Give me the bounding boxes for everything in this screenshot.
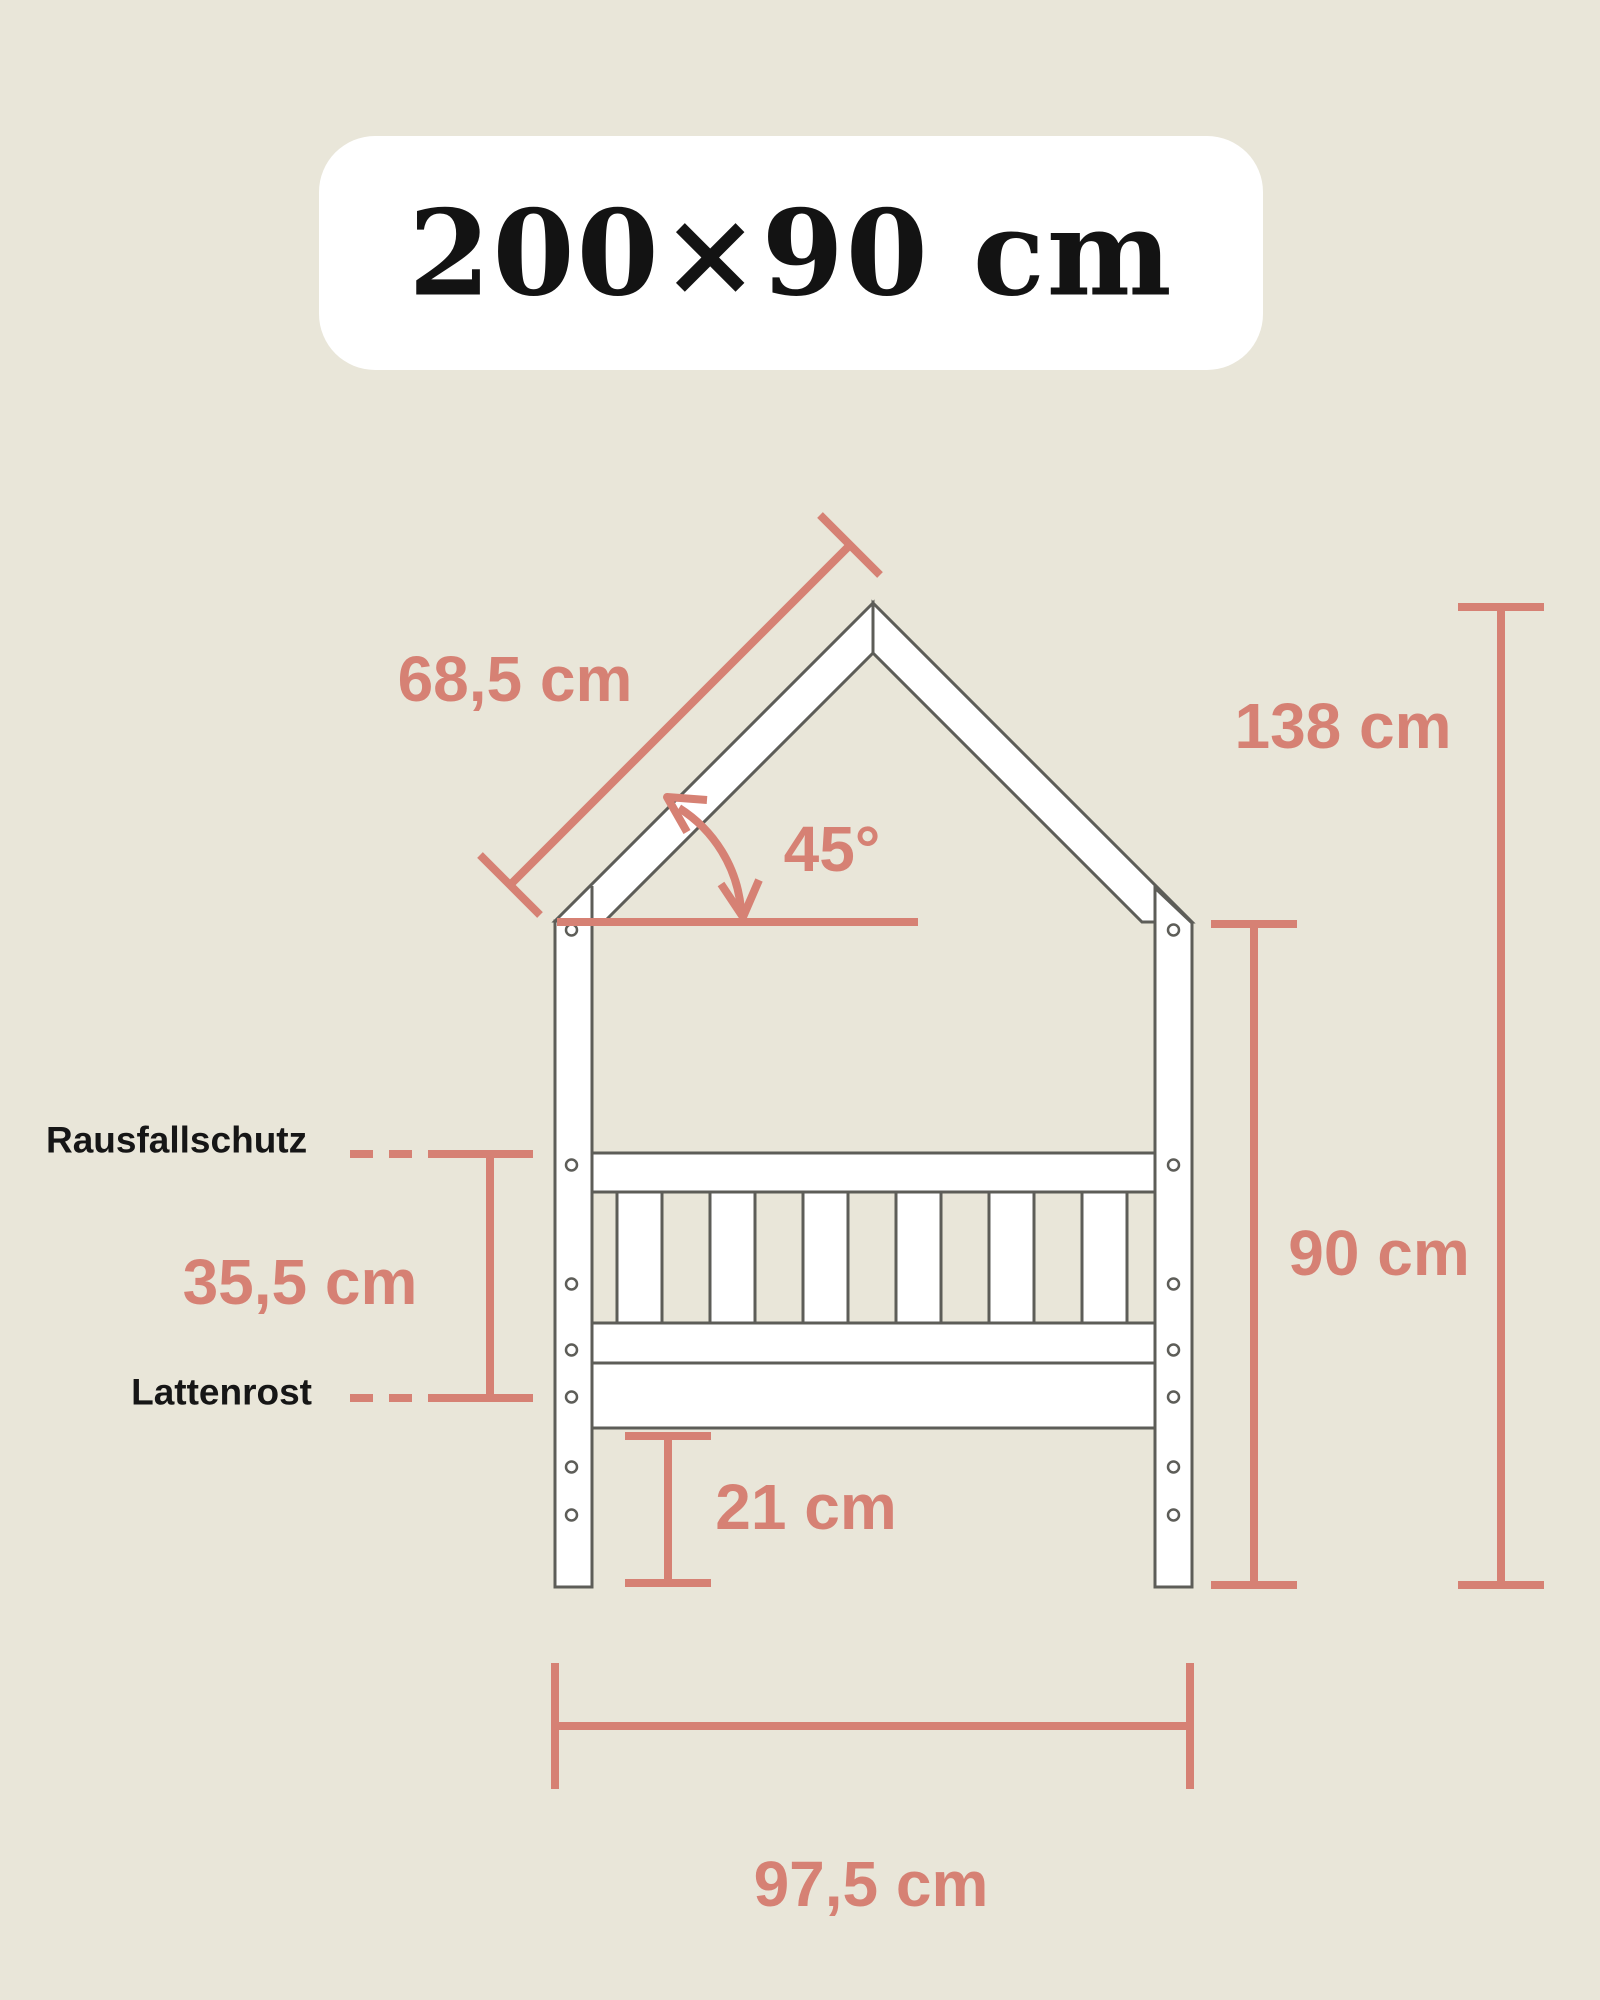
screw-hole: [566, 1462, 577, 1473]
guard-rail-top: [592, 1153, 1155, 1192]
screw-hole: [1168, 1345, 1179, 1356]
screw-hole: [1168, 1462, 1179, 1473]
screw-hole: [1168, 1279, 1179, 1290]
screw-hole: [1168, 1510, 1179, 1521]
label-fall-protection: Rausfallschutz: [46, 1120, 307, 1161]
railing-slat: [989, 1192, 1034, 1323]
label-slatted-base: Lattenrost: [131, 1372, 312, 1413]
screw-hole: [566, 1345, 577, 1356]
railing-opening: [592, 1192, 1155, 1323]
screw-hole: [566, 1160, 577, 1171]
dim-frame-height: 90 cm: [1211, 924, 1470, 1585]
screw-hole: [1168, 1392, 1179, 1403]
railing-slat: [896, 1192, 941, 1323]
dim-label-outer-width: 97,5 cm: [754, 1848, 989, 1920]
dim-label-roof-side: 68,5 cm: [398, 643, 633, 715]
dim-label-frame-height: 90 cm: [1288, 1217, 1469, 1289]
dim-label-roof-angle: 45°: [784, 813, 881, 885]
railing-slat: [803, 1192, 848, 1323]
screw-hole: [566, 1279, 577, 1290]
railing-slat: [617, 1192, 662, 1323]
dim-total-height: 138 cm: [1234, 607, 1544, 1585]
roof-beam-right: [873, 603, 1192, 922]
bed-post-left: [555, 921, 592, 1587]
dim-outer-width: 97,5 cm: [555, 1663, 1190, 1920]
dim-label-under-bed-clearance: 21 cm: [715, 1471, 896, 1543]
railing-slat: [710, 1192, 755, 1323]
railing-slat: [1082, 1192, 1127, 1323]
size-badge-label: 200×90 cm: [408, 184, 1173, 323]
screw-hole: [1168, 925, 1179, 936]
screw-hole: [566, 1392, 577, 1403]
mattress-base-board: [592, 1363, 1155, 1428]
dim-label-total-height: 138 cm: [1234, 690, 1451, 762]
dim-label-guard-to-slats: 35,5 cm: [183, 1246, 418, 1318]
dim-guard-to-slats: 35,5 cm: [183, 1154, 533, 1398]
infographic-page: { "colors":{ "background":"#e9e6d9", "ac…: [0, 0, 1600, 2000]
screw-hole: [566, 925, 577, 936]
bed-post-right: [1155, 888, 1192, 1587]
screw-hole: [1168, 1160, 1179, 1171]
bed-dimension-diagram: 200×90 cm 68,5 cm 45°: [0, 0, 1600, 2000]
screw-hole: [566, 1510, 577, 1521]
size-badge: 200×90 cm: [319, 136, 1263, 370]
dim-under-bed-clearance: 21 cm: [625, 1436, 897, 1583]
guard-rail-bottom: [592, 1323, 1155, 1363]
